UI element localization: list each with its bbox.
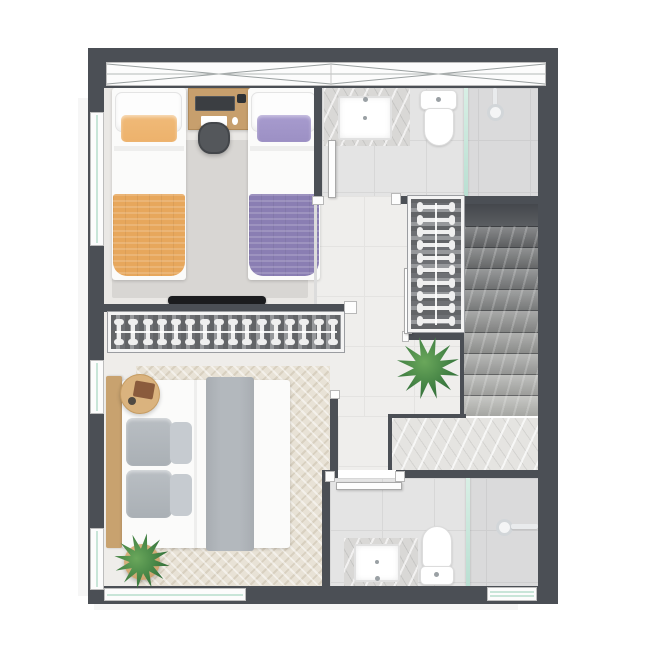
lower-shower-arm [511,524,538,529]
hallway-floor-lower [338,416,392,470]
gray-pillow-under [170,474,192,516]
stair-tread [464,289,538,310]
door-jamb [391,193,401,205]
lower-flush-button [434,572,439,577]
window-top-band [106,62,546,86]
gray-pillow [126,418,172,466]
round-side-table [120,374,160,414]
door-jamb [330,390,340,399]
stair-tread [464,374,538,395]
stair-tread [464,353,538,374]
upper-shower-zone [468,88,538,196]
glass-pane [490,591,534,593]
stair-tread [464,268,538,289]
stair-tread [464,247,538,268]
glass-pane [96,363,98,411]
stair-tread [464,310,538,331]
bed-headboard [106,376,122,548]
exterior-ledge-left [78,98,88,596]
rack-rail [115,331,337,333]
upper-toilet-bowl [424,108,454,146]
single-bed-orange [112,88,186,280]
window-left-lower [90,528,104,590]
master-clothes-rack [108,312,344,352]
duvet-fold [250,146,318,151]
landing-edge-north [390,414,466,418]
orange-accent-pillow [121,115,177,142]
lower-toilet-bowl [422,526,452,568]
upper-shower-head [487,104,504,121]
window-left-upper [90,112,104,246]
wall-right [538,48,558,602]
partition-lower-bathroom-west [322,478,330,588]
upper-bathroom-door-leaf [328,140,336,198]
glass-pane [96,115,98,243]
upper-drain [363,116,367,120]
landing-edge-west [388,414,392,470]
purple-blanket [249,194,319,276]
glass-pane [490,595,534,597]
glass-pane [107,594,243,596]
mouse [232,117,238,125]
partition-rack-stub [408,332,464,340]
lower-bathroom-door-leaf [336,482,402,490]
door-jamb [344,301,357,314]
bedroom-hall-threshold [314,204,317,304]
window-lower-bathroom [487,587,537,601]
window-left-middle [90,360,104,414]
window-muntin-pattern [107,63,545,85]
floor-plan [0,0,650,650]
upper-glass-partition [464,88,468,196]
orange-blanket [113,194,185,276]
gray-pillow-under [170,422,192,464]
lower-drain [375,560,379,564]
duvet-fold [114,146,184,151]
stair-tread [464,395,538,416]
purple-accent-pillow [257,115,311,142]
window-bottom [104,588,246,601]
partition-upper-bathroom-west [314,88,322,204]
gray-pillow [126,470,172,518]
rack-rail [435,203,437,325]
bed-runner [206,377,254,551]
stair-landing [392,418,538,470]
upper-faucet [363,97,368,102]
stair-tread [464,226,538,247]
laptop [195,96,235,111]
desk-chair [198,122,230,154]
upper-flush-button [436,97,441,102]
staircase-steps [464,226,538,416]
door-jamb [325,471,335,482]
lower-glass-partition [466,478,470,586]
book [133,380,155,399]
partition-master-east [330,398,338,478]
hall-clothes-rack [408,196,464,332]
partition-lower-bathroom-north [396,470,538,478]
stair-tread [464,332,538,353]
lower-faucet [375,576,380,581]
duvet-fold [194,380,197,548]
door-jamb [312,196,324,205]
cup [128,397,136,405]
single-bed-purple [248,88,320,280]
desk-gadget [237,94,246,103]
glass-pane [96,531,98,587]
door-jamb [395,471,405,482]
partition-master-north [104,304,354,312]
